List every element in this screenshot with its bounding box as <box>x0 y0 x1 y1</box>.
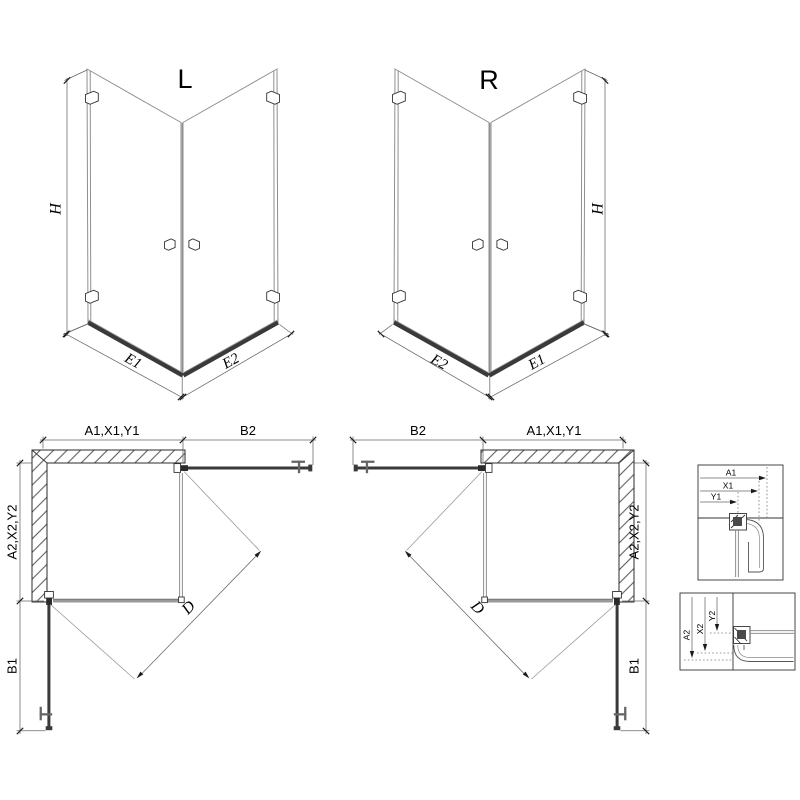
dim-label-door-side: B1 <box>626 658 641 674</box>
detail-dim-x1: X1 <box>723 481 734 491</box>
technical-drawing-page: L H E1 E2 R H E2 E1 A1,X1,Y1 B2 A2,X2,Y2… <box>0 0 800 800</box>
dim-label-height: H <box>590 202 607 216</box>
dim-label-door-side: B1 <box>4 658 19 674</box>
detail-dim-x2: X2 <box>695 624 705 635</box>
detail-dim-y1: Y1 <box>711 492 722 502</box>
variant-label-right: R <box>479 65 499 95</box>
detail-dim-a1: A1 <box>726 468 737 478</box>
dim-label-height: H <box>48 202 65 216</box>
page-background <box>0 0 800 800</box>
dim-label-wall-side: A2,X2,Y2 <box>626 505 641 560</box>
dim-label-wall-top: A1,X1,Y1 <box>85 423 140 438</box>
dim-label-wall-top: A1,X1,Y1 <box>527 423 582 438</box>
detail-dim-a2: A2 <box>681 630 691 641</box>
shower-enclosure-drawing: L H E1 E2 R H E2 E1 A1,X1,Y1 B2 A2,X2,Y2… <box>0 0 800 800</box>
dim-label-wall-side: A2,X2,Y2 <box>4 505 19 560</box>
variant-label-left: L <box>177 64 192 94</box>
detail-dim-y2: Y2 <box>707 611 717 622</box>
dim-label-door-top: B2 <box>410 423 426 438</box>
dim-label-door-top: B2 <box>240 423 256 438</box>
